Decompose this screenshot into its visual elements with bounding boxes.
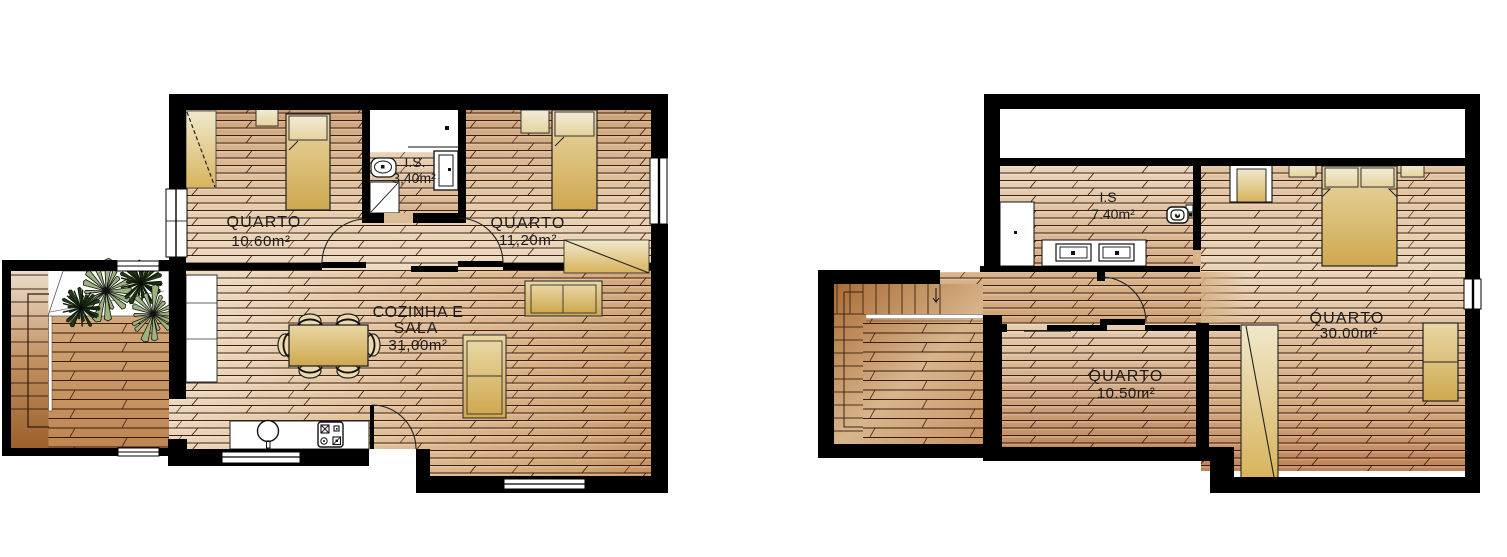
- svg-text:I.S: I.S: [1099, 189, 1116, 205]
- svg-text:10.60m²: 10.60m²: [231, 233, 290, 250]
- svg-text:30.00m²: 30.00m²: [1320, 325, 1379, 342]
- svg-text:7.40m²: 7.40m²: [1091, 206, 1135, 222]
- svg-text:QUARTO: QUARTO: [226, 214, 301, 231]
- svg-text:3,40m²: 3,40m²: [392, 170, 436, 186]
- svg-text:I.S.: I.S.: [404, 154, 425, 170]
- svg-text:31,00m²: 31,00m²: [388, 337, 447, 354]
- svg-text:QUARTO: QUARTO: [1088, 368, 1163, 385]
- svg-text:SALA: SALA: [394, 320, 439, 337]
- svg-text:10.50m²: 10.50m²: [1097, 385, 1156, 402]
- svg-text:COZINHA E: COZINHA E: [373, 304, 464, 321]
- svg-text:QUARTO: QUARTO: [490, 215, 565, 232]
- svg-text:11,20m²: 11,20m²: [499, 232, 557, 249]
